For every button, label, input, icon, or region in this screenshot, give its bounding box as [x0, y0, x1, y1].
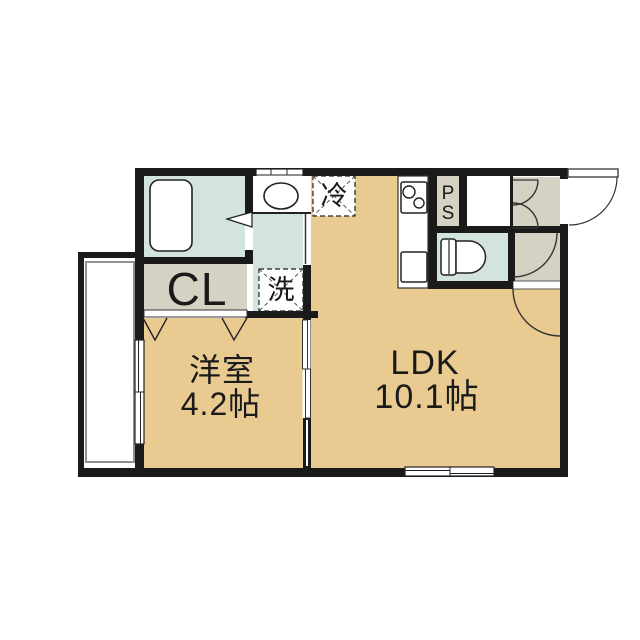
sliding-panel-1 [303, 320, 308, 369]
ldk-label: LDK [390, 346, 459, 380]
pipe-space-label-s: S [442, 204, 455, 223]
western-room-size: 4.2帖 [181, 388, 262, 420]
bathtub [150, 180, 192, 251]
kitchen-counter [398, 176, 428, 288]
toilet-fixture [441, 239, 486, 275]
sliding-door-pocket-line [306, 420, 308, 466]
entrance-door [568, 169, 618, 225]
wall-top [135, 168, 568, 176]
balcony-floor [78, 252, 141, 477]
storage-floor [467, 176, 510, 228]
western-room-label: 洋室 [189, 354, 255, 386]
ldk-size: 10.1帖 [374, 380, 479, 414]
refrigerator-label: 冷 [321, 183, 348, 210]
entrance-door-leaf [568, 169, 618, 177]
hall-floor [515, 233, 561, 281]
floor-plan-canvas: 洋室 4.2帖 LDK 10.1帖 CL 冷 洗 P S [0, 0, 640, 640]
laundry-label: 洗 [268, 277, 295, 304]
room-floors [144, 176, 561, 468]
washroom-door-gap [303, 212, 311, 265]
stove [401, 182, 427, 213]
washbasin [253, 176, 311, 213]
wall-ps-right [459, 176, 467, 233]
entrance-door-gap [560, 179, 568, 224]
balcony [78, 252, 141, 477]
kitchen-sink [401, 252, 427, 282]
sliding-panel-2 [306, 369, 311, 418]
wall-toilet-hall [508, 233, 515, 281]
entrance-step [513, 281, 561, 289]
wall-under-ps-storage [428, 226, 568, 233]
floor-plan-drawing [0, 0, 640, 640]
wall-storage-entrance [510, 176, 513, 228]
wall-toilet-bottom [428, 281, 513, 289]
entrance-door-arc [569, 177, 617, 225]
window-bottom [405, 467, 494, 476]
pipe-space-label-p: P [442, 184, 455, 203]
window-left [135, 340, 144, 444]
closet-label: CL [167, 266, 228, 312]
